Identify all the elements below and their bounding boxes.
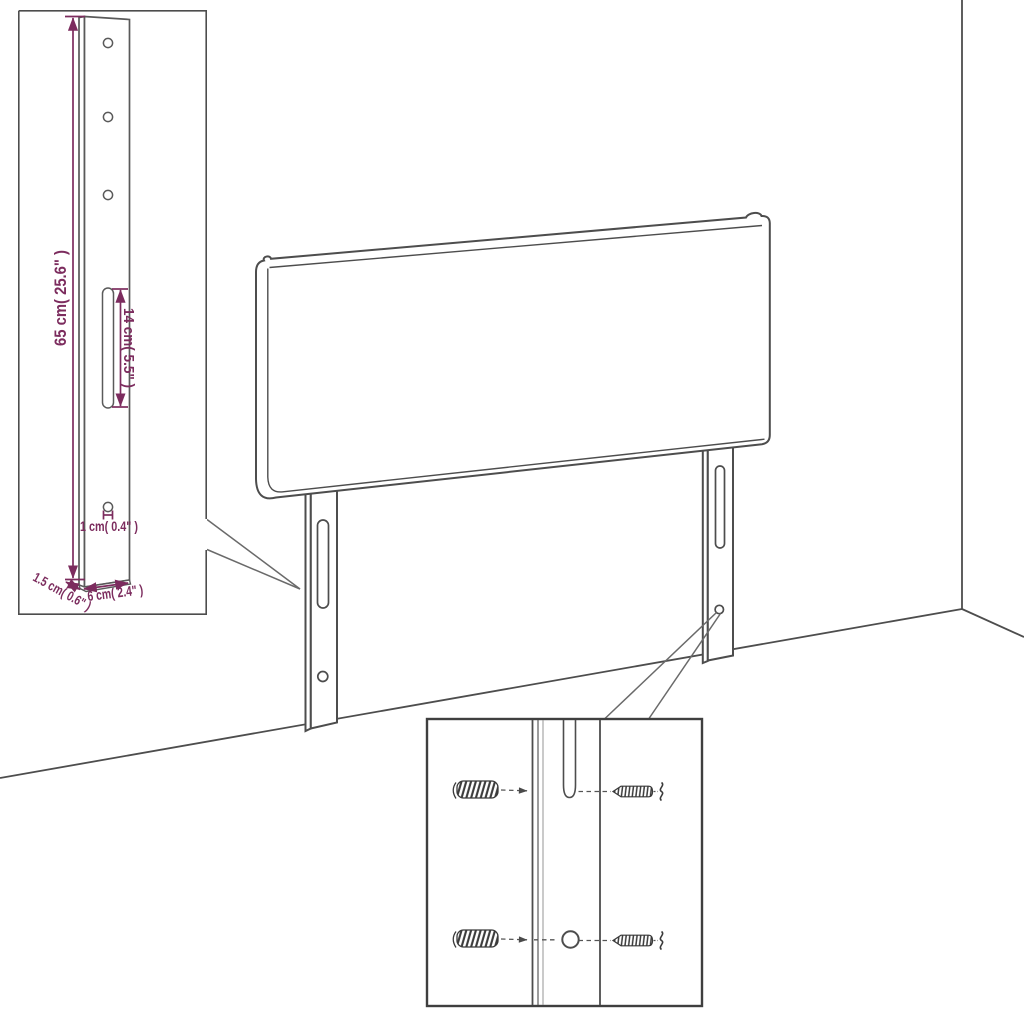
- left-leg-hole: [318, 672, 328, 682]
- bracket-small-hole: [103, 502, 112, 511]
- left-leg-slot: [318, 520, 329, 608]
- mounting-bracket: [79, 17, 131, 592]
- headboard-outline: [256, 213, 770, 498]
- left-leg: [306, 477, 338, 731]
- bracket-hole-2: [103, 112, 112, 121]
- bracket-slot: [103, 288, 114, 408]
- right-leg-slot: [716, 466, 725, 548]
- wall-plug-body: [457, 781, 498, 798]
- right-leg: [703, 440, 733, 663]
- dim-hole-label: 1 cm( 0.4" ): [80, 518, 138, 534]
- floor-line-right: [962, 609, 1024, 637]
- screw-icon: [613, 786, 653, 797]
- headboard-panel: [256, 213, 770, 498]
- bracket-hole-3: [103, 190, 112, 199]
- leg-detail-inset: 65 cm( 25.6" ) 14 cm( 5.5" ) 1 cm( 0.4" …: [18, 10, 207, 615]
- dim-height-label: 65 cm( 25.6" ): [51, 250, 70, 346]
- diagram-canvas: 65 cm( 25.6" ) 14 cm( 5.5" ) 1 cm( 0.4" …: [0, 0, 1024, 1024]
- bracket-hole-1: [103, 38, 112, 47]
- mounting-inset-background: [427, 719, 702, 1006]
- headboard-assembly-diagram: 65 cm( 25.6" ) 14 cm( 5.5" ) 1 cm( 0.4" …: [0, 0, 1024, 1024]
- mounting-detail-inset: [427, 719, 702, 1006]
- dim-slot-label: 14 cm( 5.5" ): [120, 308, 136, 388]
- callout-wedge-left-leg: [207, 520, 300, 590]
